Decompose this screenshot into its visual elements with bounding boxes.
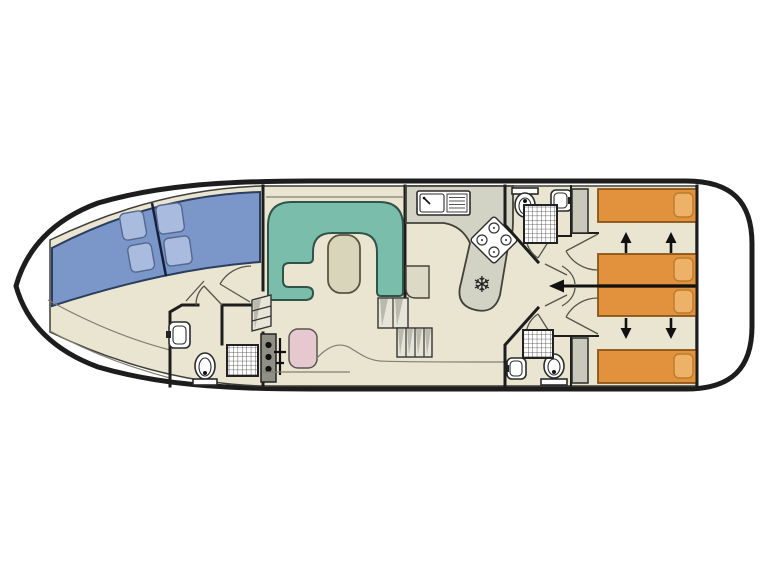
pillow-icon [674,193,693,217]
saloon-table [328,235,360,293]
stair-landing [406,266,429,298]
pillow-icon [119,210,147,241]
shower-icon [523,330,553,358]
boat-floor-plan: ❄ [0,0,768,576]
steps-upper-flight [378,298,408,328]
shower-icon [227,345,258,376]
pillow-icon [163,235,193,266]
wardrobe [572,338,588,383]
pillow-icon [127,242,155,273]
washbasin-icon [166,322,190,348]
pillow-icon [674,258,693,281]
steps-lower-flight [397,328,432,357]
wardrobe [572,189,588,233]
floor-plan-svg: ❄ [0,0,768,576]
freezer-icon: ❄ [473,273,491,298]
washbasin-icon [504,358,526,379]
pillow-icon [155,202,185,234]
pillow-icon [674,290,693,313]
pillow-icon [674,354,693,378]
helm-seat [289,329,317,368]
steps-bow-entry [252,295,271,331]
toilet-icon [193,353,217,385]
shower-icon [524,205,557,243]
galley-sink-icon [417,191,470,215]
